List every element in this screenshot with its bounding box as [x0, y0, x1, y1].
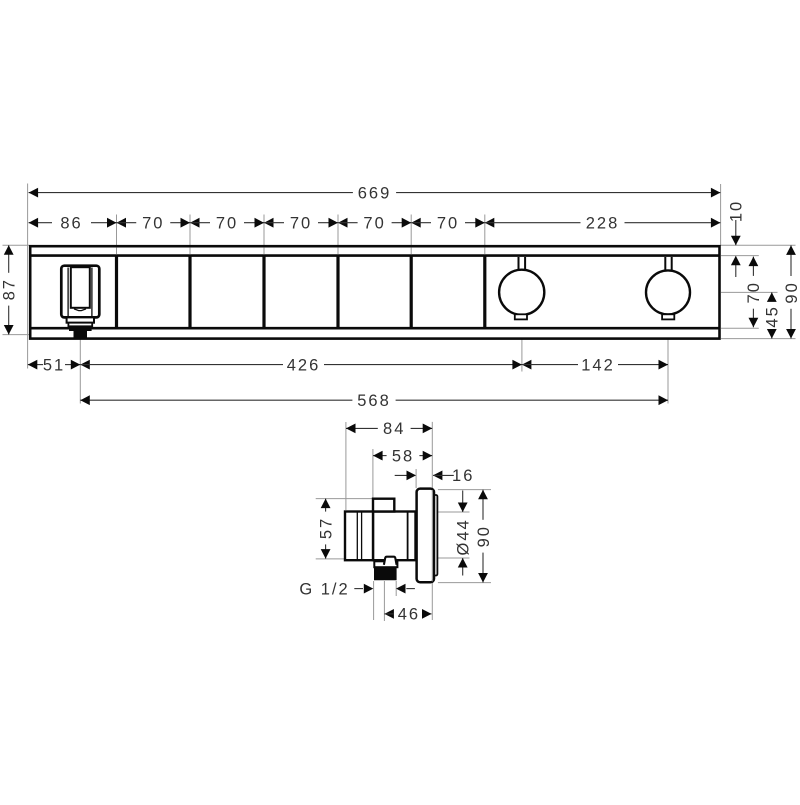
svg-text:228: 228	[586, 215, 620, 233]
svg-text:426: 426	[287, 356, 321, 374]
svg-text:70: 70	[290, 215, 312, 233]
svg-text:568: 568	[357, 392, 391, 410]
svg-text:58: 58	[392, 447, 414, 465]
svg-text:10: 10	[728, 200, 746, 222]
svg-text:90: 90	[475, 525, 493, 547]
svg-text:70: 70	[216, 215, 238, 233]
svg-text:57: 57	[317, 517, 335, 539]
svg-text:669: 669	[358, 184, 392, 202]
svg-text:142: 142	[581, 356, 615, 374]
svg-text:70: 70	[745, 281, 763, 303]
svg-text:87: 87	[1, 278, 19, 300]
svg-text:70: 70	[142, 215, 164, 233]
svg-text:84: 84	[383, 420, 405, 438]
svg-text:16: 16	[452, 467, 474, 485]
svg-text:46: 46	[398, 606, 420, 624]
svg-text:45: 45	[764, 305, 782, 327]
svg-text:51: 51	[43, 356, 65, 374]
svg-text:Ø44: Ø44	[454, 518, 472, 555]
svg-text:86: 86	[60, 215, 82, 233]
svg-text:G 1/2: G 1/2	[299, 581, 349, 599]
svg-text:70: 70	[363, 215, 385, 233]
svg-text:90: 90	[783, 281, 800, 303]
svg-text:70: 70	[437, 215, 459, 233]
